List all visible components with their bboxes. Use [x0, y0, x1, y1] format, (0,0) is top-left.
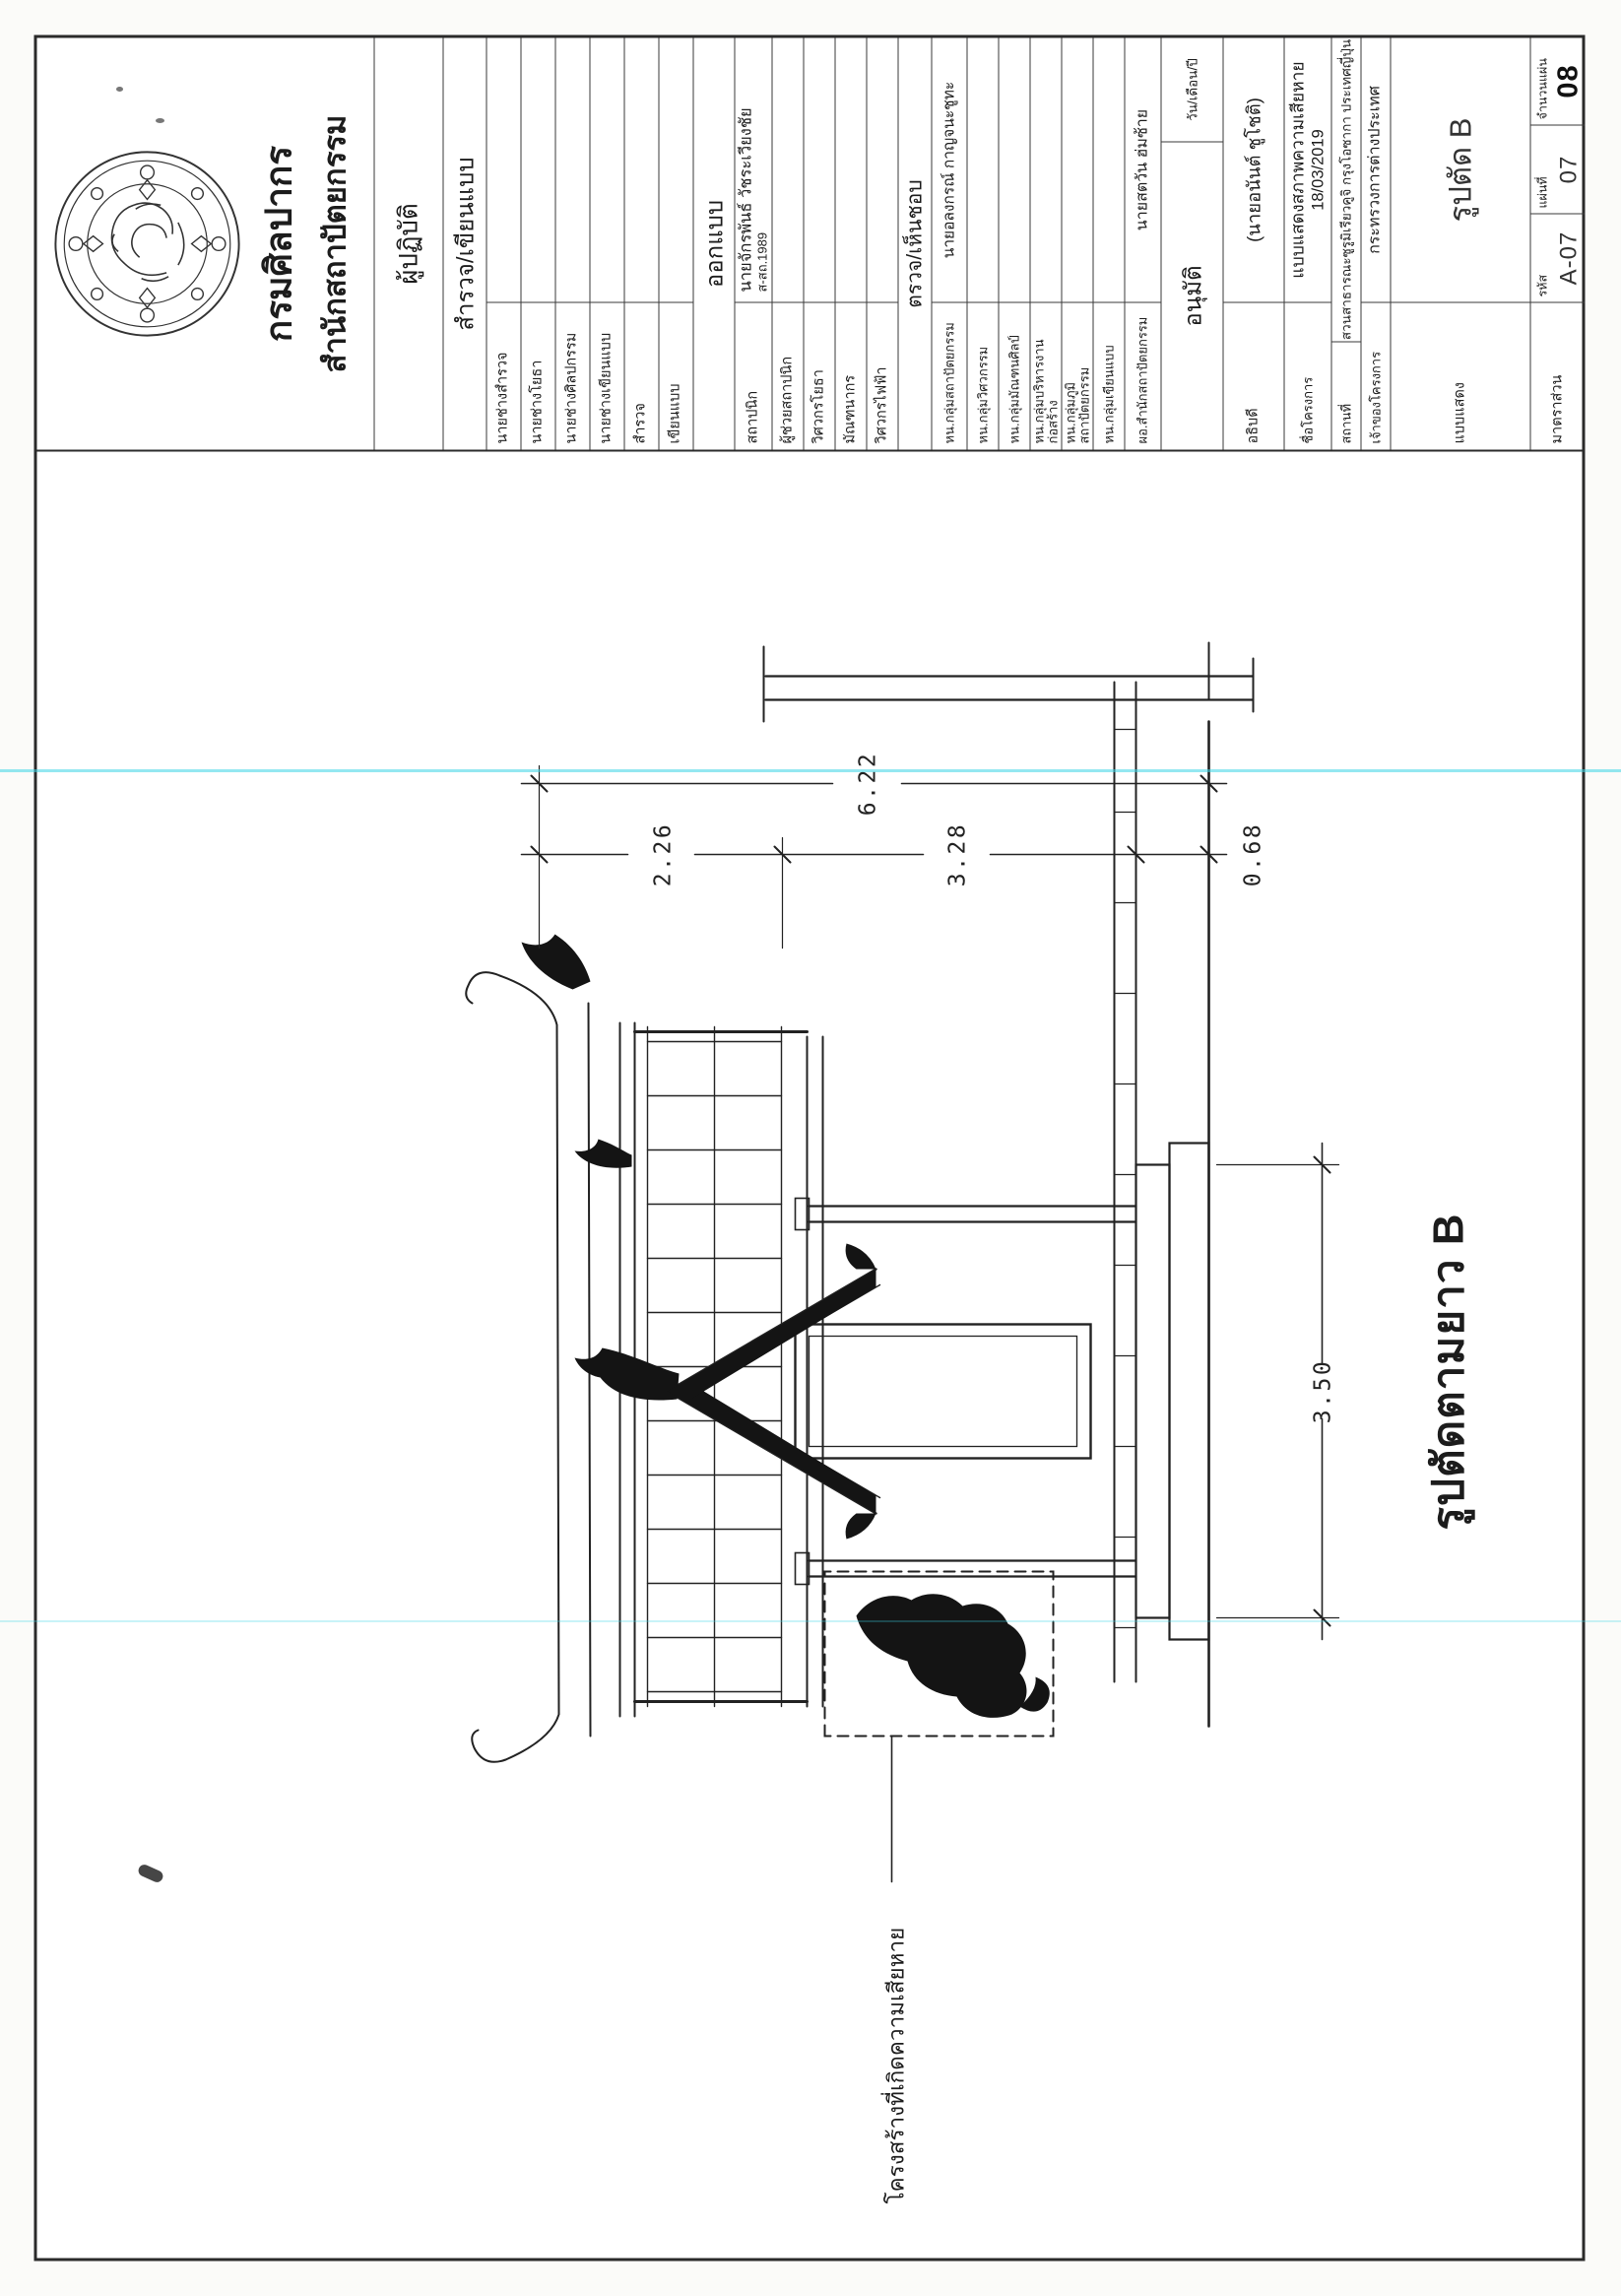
sheet-code-cell: รหัส A-07	[1531, 214, 1586, 302]
titleblock-row: มัณฑนากร	[836, 38, 868, 450]
sheet-type-value: รูปตัด B	[1392, 38, 1530, 302]
titleblock-row: ผู้ช่วยสถาปนิก	[773, 38, 805, 450]
scanned-drawing-page: 2.26 3.28 0.68 6.22 3.50 รูปตัดตามยาว B …	[0, 0, 1621, 2296]
titleblock-row-architect: สถาปนิก นายจักรพันธ์ วัชระเวียงชัย ส-สถ.…	[736, 38, 773, 450]
titleblock-row: หน.กลุ่มเขียนแบบ	[1094, 38, 1126, 450]
section-header-approve: อนุมัติ วัน/เดือน/ปี	[1162, 38, 1224, 450]
titleblock-row: หน.กลุ่มภูมิสถาปัตยกรรม	[1063, 38, 1094, 450]
sheet-number-cell: แผ่นที่ 07	[1531, 125, 1586, 214]
section-header-survey: สำรวจ/เขียนแบบ	[444, 38, 487, 450]
dimension-ticks	[532, 776, 1330, 1626]
titleblock-row-owner: เจ้าของโครงการ กระทรวงการต่างประเทศ	[1362, 38, 1392, 450]
reviewer-name: นายอลงกรณ์ กาญจนะชูทะ	[933, 38, 967, 302]
titleblock-row-sheet-type: แบบแสดง รูปตัด B	[1392, 38, 1531, 450]
project-name: แบบแสดงสภาพความเสียหาย	[1287, 61, 1307, 278]
dim-total-height: 6.22	[856, 752, 881, 816]
project-location: สวนสาธารณะซูรูมิเรียวคูจิ กรุงโอซากา ประ…	[1332, 38, 1361, 342]
scan-speck	[156, 118, 164, 123]
titleblock-row: นายช่างโยธา	[522, 38, 556, 450]
sheet-total-cell: จำนวนแผ่น 08	[1531, 38, 1586, 125]
drawing-sheet: 2.26 3.28 0.68 6.22 3.50 รูปตัดตามยาว B …	[34, 35, 1586, 2262]
titleblock-row-location: สถานที่ สวนสาธารณะซูรูมิเรียวคูจิ กรุงโอ…	[1332, 38, 1362, 450]
director-general-name: (นายอนันต์ ชูโชติ)	[1224, 38, 1284, 302]
upper-roof-left-curl	[472, 1731, 505, 1762]
agency-subname: สำนักสถาปัตยกรรม	[310, 115, 359, 373]
section-header-design: ออกแบบ	[694, 38, 736, 450]
damaged-structure-silhouette	[857, 1594, 1050, 1718]
titleblock-row-director-of-office: ผอ.สำนักสถาปัตยกรรม นายสตวัน ฮ่มซ้าย	[1126, 38, 1162, 450]
sheet-total-value: 08	[1553, 38, 1586, 125]
date-header-cell: วัน/เดือน/ปี	[1162, 38, 1223, 143]
titleblock-row-scale: มาตราส่วน รหัส A-07 แผ่นที่ 07 จำนวนแผ่น…	[1531, 38, 1586, 450]
office-director-name: นายสตวัน ฮ่มซ้าย	[1126, 38, 1161, 302]
dim-body: 3.28	[945, 822, 971, 886]
project-date: 18/03/2019	[1310, 129, 1329, 211]
scan-artifact-line	[0, 1620, 1621, 1622]
titleblock-row: หน.กลุ่มมัณฑนศิลป์	[1000, 38, 1031, 450]
section-title: รูปตัดตามยาว B	[1414, 1175, 1483, 1569]
dim-base: 0.68	[1241, 822, 1266, 886]
sheet-code-value: A-07	[1553, 215, 1586, 302]
scan-speck	[116, 87, 123, 92]
architect-name: นายจักรพันธ์ วัชระเวียงชัย	[737, 107, 755, 301]
dim-width: 3.50	[1311, 1359, 1336, 1423]
title-block: กรมศิลปากร สำนักสถาปัตยกรรม ผู้ปฏิบัติ ส…	[37, 38, 1583, 452]
titleblock-row: นายช่างศิลปกรรม	[556, 38, 591, 450]
titleblock-row: นายช่างเขียนแบบ	[591, 38, 625, 450]
sheet-number-value: 07	[1553, 126, 1586, 214]
upper-roof-top-edge	[500, 976, 559, 1760]
operator-header: ผู้ปฏิบัติ	[375, 38, 443, 450]
titleblock-row: เขียนแบบ	[660, 38, 694, 450]
titleblock-row: หน.กลุ่มบริหารงานก่อสร้าง	[1031, 38, 1063, 450]
project-owner: กระทรวงการต่างประเทศ	[1362, 38, 1391, 302]
titleblock-row: วิศวกรโยธา	[805, 38, 836, 450]
agency-name: กรมศิลปากร	[250, 146, 308, 342]
agency-header: กรมศิลปากร สำนักสถาปัตยกรรม	[37, 38, 375, 450]
titleblock-row-operator: ผู้ปฏิบัติ	[375, 38, 444, 450]
titleblock-row: สำรวจ	[625, 38, 660, 450]
titleblock-row-director-general: อธิบดี (นายอนันต์ ชูโชติ)	[1224, 38, 1285, 450]
section-header-review: ตรวจ/เห็นชอบ	[899, 38, 933, 450]
titleblock-row: หน.กลุ่มวิศวกรรม	[968, 38, 1000, 450]
dimension-lines	[522, 784, 1323, 1640]
architect-license: ส-สถ.1989	[755, 232, 770, 302]
dim-roof: 2.26	[651, 822, 677, 886]
titleblock-row: นายช่างสำรวจ	[487, 38, 522, 450]
fine-arts-department-seal-icon	[51, 148, 244, 341]
titleblock-row: วิศวกรไฟฟ้า	[868, 38, 899, 450]
scan-artifact-line	[0, 769, 1621, 772]
titleblock-row-project-name: ชื่อโครงการ แบบแสดงสภาพความเสียหาย 18/03…	[1285, 38, 1332, 450]
upper-roof-right-curl	[466, 972, 499, 1003]
titleblock-row: หน.กลุ่มสถาปัตยกรรม นายอลงกรณ์ กาญจนะชูท…	[933, 38, 968, 450]
damage-note-text: โครงสร้างที่เกิดความเสียหาย	[878, 1884, 914, 2204]
dimension-extension-lines	[540, 766, 1339, 1618]
